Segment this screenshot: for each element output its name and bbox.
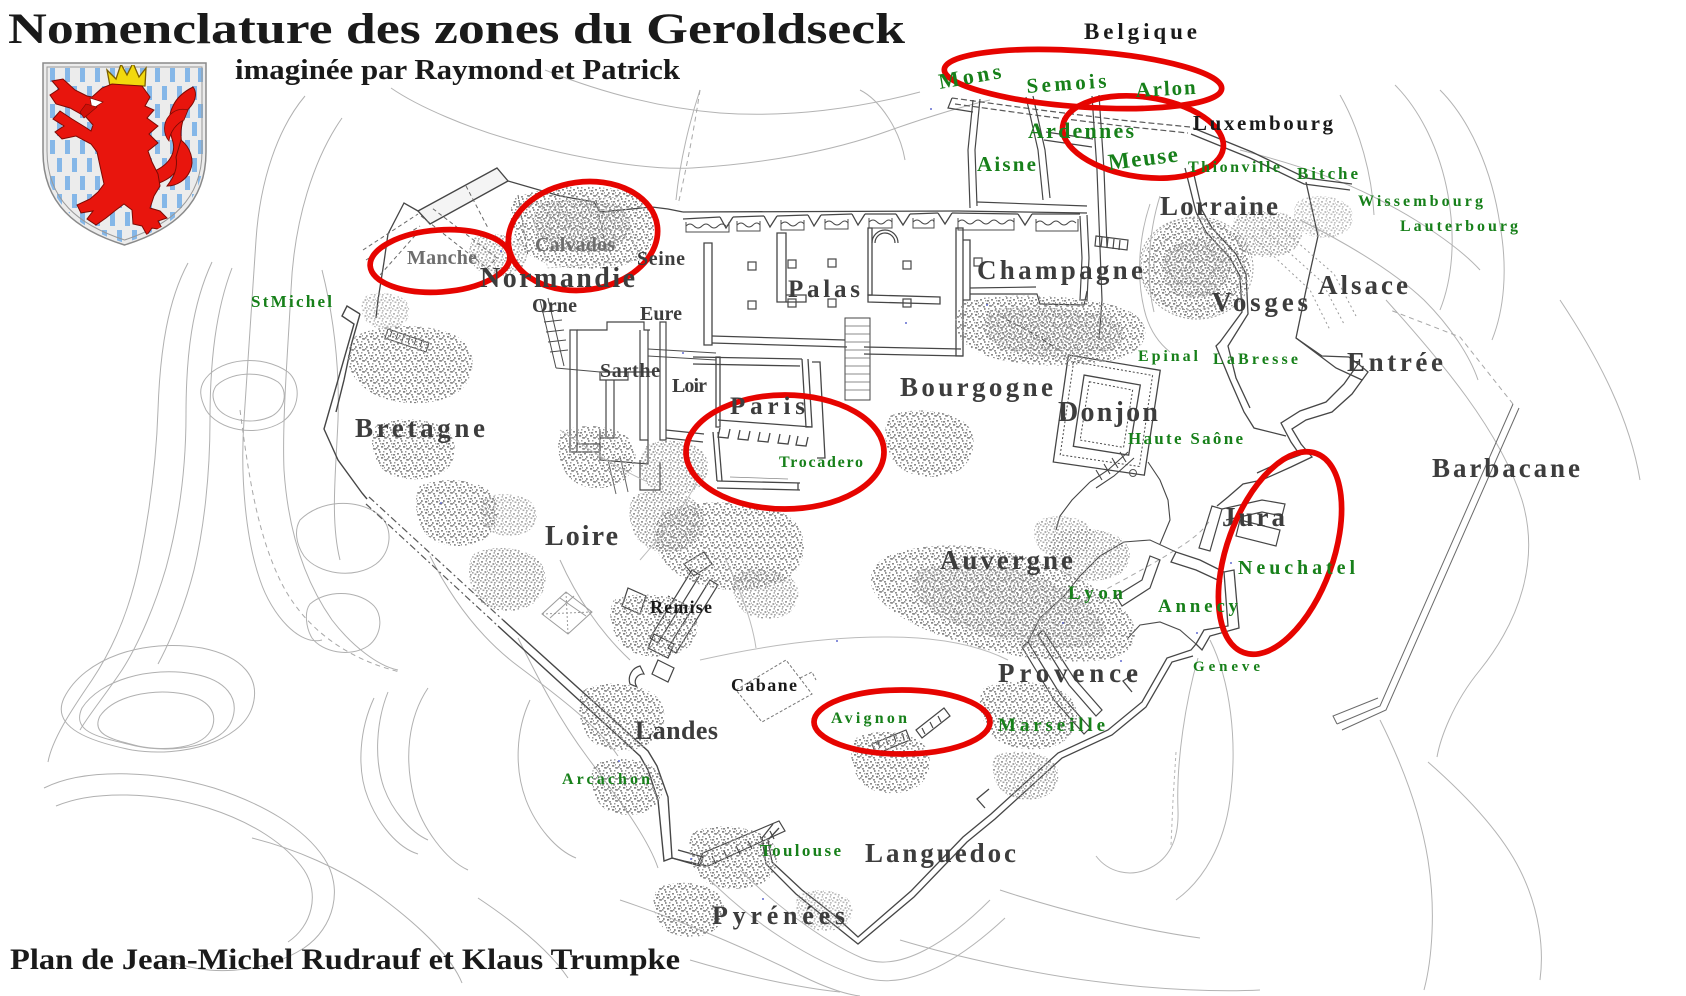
svg-text:Seine: Seine [637,248,685,270]
svg-text:Calvados: Calvados [535,234,615,256]
svg-text:Lorraine: Lorraine [1160,191,1278,221]
svg-text:Manche: Manche [407,247,477,269]
svg-text:Thionville: Thionville [1188,159,1280,176]
svg-text:Wissembourg: Wissembourg [1358,193,1483,210]
svg-text:StMichel: StMichel [251,292,332,311]
svg-text:Plan de Jean-Michel Rudrauf et: Plan de Jean-Michel Rudrauf et Klaus Tru… [10,943,680,976]
svg-text:Haute Saône: Haute Saône [1128,429,1243,448]
svg-text:Arlon: Arlon [1135,75,1196,102]
svg-text:Marseille: Marseille [998,715,1105,736]
svg-text:Donjon: Donjon [1058,397,1158,428]
svg-text:Lauterbourg: Lauterbourg [1400,218,1518,235]
svg-text:Sarthe: Sarthe [600,360,660,382]
svg-text:Loir: Loir [672,375,707,397]
svg-text:Palas: Palas [788,276,860,303]
svg-text:Languedoc: Languedoc [865,838,1016,868]
svg-text:Trocadero: Trocadero [779,454,863,471]
svg-text:Barbacane: Barbacane [1432,453,1580,483]
svg-text:Remise: Remise [650,597,712,617]
svg-text:Eure: Eure [640,303,682,325]
svg-text:Neuchatel: Neuchatel [1238,557,1355,579]
svg-text:imaginée par Raymond et Patric: imaginée par Raymond et Patrick [235,55,680,86]
svg-text:Cabane: Cabane [731,675,797,695]
svg-text:Orne: Orne [532,295,577,317]
svg-text:Champagne: Champagne [977,255,1143,285]
svg-text:Vosges: Vosges [1212,287,1308,317]
svg-text:Luxembourg: Luxembourg [1193,111,1334,135]
svg-text:Aisne: Aisne [977,152,1036,176]
svg-text:Landes: Landes [635,716,718,745]
svg-text:Nomenclature des zones du Gero: Nomenclature des zones du Geroldseck [8,6,905,53]
svg-text:Bourgogne: Bourgogne [900,372,1053,402]
svg-text:Loire: Loire [545,521,618,552]
